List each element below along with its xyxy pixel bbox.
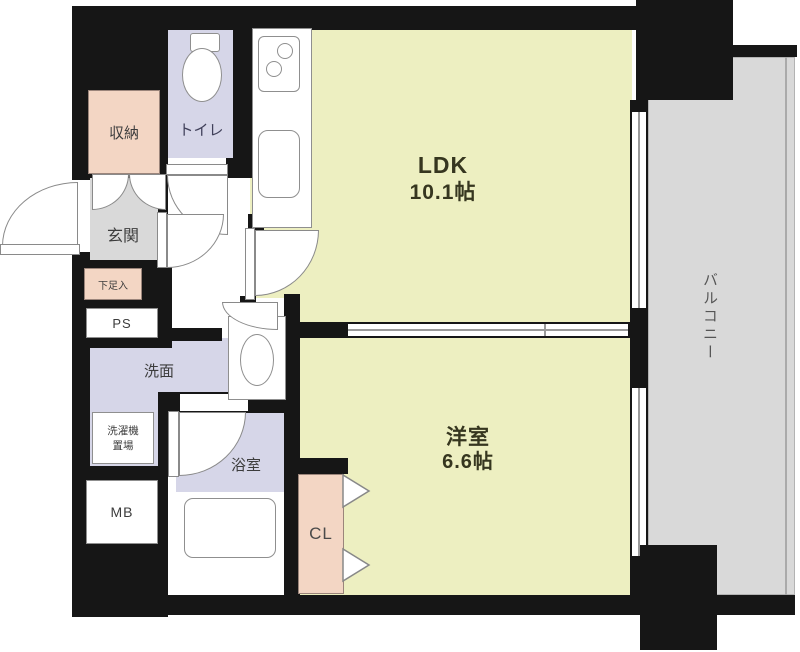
wall xyxy=(733,45,797,57)
bathroom-door-leaf xyxy=(168,411,179,477)
western-room-window xyxy=(632,388,646,556)
entrance-door-leaf xyxy=(0,244,80,255)
washbasin-icon xyxy=(240,334,274,386)
laundry-label-1: 洗濯機 xyxy=(107,423,139,438)
room-balcony xyxy=(648,57,795,595)
shoe-cabinet-label: 下足入 xyxy=(98,277,128,292)
structural-column xyxy=(640,545,717,650)
storage-label: 収納 xyxy=(109,122,139,143)
western-room-label: 洋室 6.6帖 xyxy=(388,425,548,474)
ldk-window xyxy=(632,112,646,308)
hall-door-leaf xyxy=(157,212,167,268)
ldk-label: LDK 10.1帖 xyxy=(363,152,523,205)
entrance-door-arc xyxy=(2,182,78,246)
western-room-size: 6.6帖 xyxy=(388,450,548,474)
kitchen-sink-icon xyxy=(258,130,300,198)
stove-icon xyxy=(258,36,300,92)
sliding-door-opening xyxy=(348,324,628,336)
balcony-label: バルコニー xyxy=(700,252,718,382)
wall xyxy=(233,8,252,176)
closet-label: CL xyxy=(309,524,333,544)
room-storage: 収納 xyxy=(88,90,160,174)
box-ps: PS xyxy=(86,308,158,338)
wall xyxy=(284,458,348,474)
laundry-label-2: 置場 xyxy=(113,438,134,453)
balcony-railing xyxy=(785,57,787,595)
closet-folding-door-icon xyxy=(342,472,372,586)
wall xyxy=(226,158,252,178)
ps-label: PS xyxy=(112,316,131,331)
washroom-label: 洗面 xyxy=(129,363,189,381)
toilet-label: トイレ xyxy=(170,122,232,140)
ldk-size: 10.1帖 xyxy=(363,180,523,205)
burner xyxy=(277,43,293,59)
structural-column xyxy=(636,0,733,100)
ldk-door-leaf xyxy=(245,228,255,300)
western-room-name: 洋室 xyxy=(388,425,548,450)
burner xyxy=(266,61,282,77)
bathroom-label: 浴室 xyxy=(216,457,276,475)
room-closet: CL xyxy=(298,474,344,594)
toilet-bowl-icon xyxy=(182,48,222,102)
entrance-label: 玄関 xyxy=(92,227,154,246)
box-shoe-cabinet: 下足入 xyxy=(84,268,142,300)
toilet-door-leaf xyxy=(166,164,228,175)
box-laundry: 洗濯機 置場 xyxy=(92,412,154,464)
box-mb: MB xyxy=(86,480,158,544)
mb-label: MB xyxy=(111,504,134,520)
ldk-name: LDK xyxy=(363,152,523,180)
bathtub-icon xyxy=(184,498,276,558)
floor-plan: 収納 下足入 PS 洗濯機 置場 MB CL xyxy=(0,0,800,652)
wall xyxy=(168,328,222,341)
